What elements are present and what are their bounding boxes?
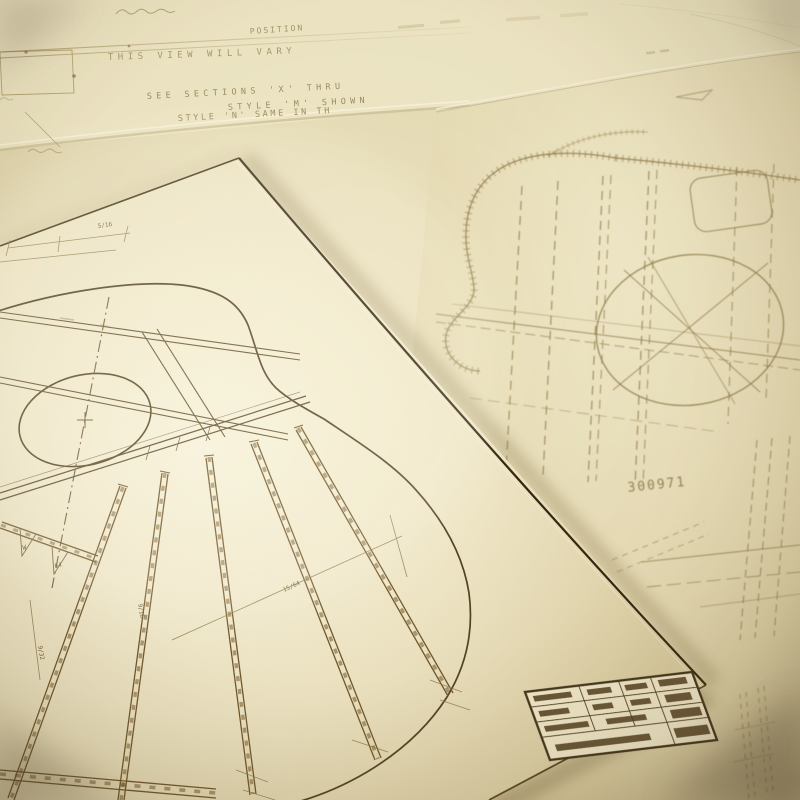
photo-canvas: POSITION THIS VIEW WILL VARY SEE SECTION… (0, 0, 800, 800)
vignette-overlay (0, 0, 800, 800)
blueprint-photo: POSITION THIS VIEW WILL VARY SEE SECTION… (0, 0, 800, 800)
